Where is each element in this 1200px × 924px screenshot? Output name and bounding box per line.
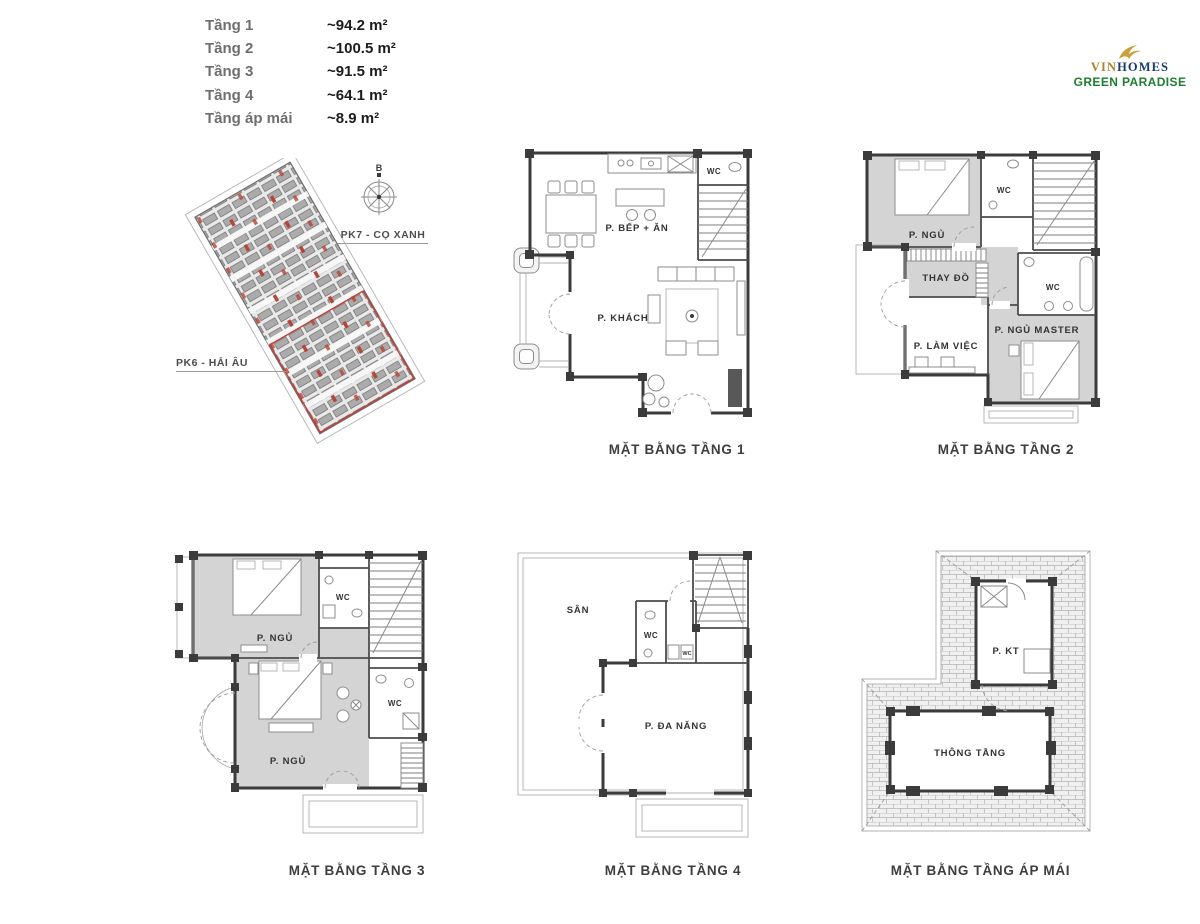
floor-plan-drawing-ap-mai: P. KT THÔNG TẦNG — [848, 543, 1113, 848]
zone-label-pk7: PK7 - CỌ XANH — [338, 229, 428, 244]
brand-suffix: HOMES — [1117, 60, 1169, 74]
floorplan-sheet: Tầng 1 ~94.2 m² Tầng 2 ~100.5 m² Tầng 3 … — [0, 0, 1200, 924]
bed — [895, 159, 969, 215]
room-label-void: THÔNG TẦNG — [934, 747, 1006, 759]
dining-set — [546, 181, 596, 247]
floor-name: Tầng 3 — [205, 63, 327, 80]
stairs — [693, 555, 748, 628]
caption-tang-4: MẶT BẰNG TẦNG 4 — [573, 863, 773, 878]
room-label-wc: WC — [707, 167, 721, 176]
legend-row: Tầng 3 ~91.5 m² — [205, 60, 396, 83]
caption-tang-3: MẶT BẰNG TẦNG 3 — [257, 863, 457, 878]
floor-plan-ap-mai: P. KT THÔNG TẦNG — [848, 543, 1113, 848]
porch — [514, 248, 568, 369]
room-label-dressing: THAY ĐỒ — [922, 272, 969, 284]
side-balcony — [175, 555, 193, 658]
room-label-wc: WC — [644, 631, 658, 640]
brand-name: VINHOMES — [1072, 61, 1188, 74]
toilet — [729, 163, 741, 172]
compass-icon: B — [357, 162, 401, 220]
room-label-wc-side: WC — [388, 699, 402, 708]
project-name: GREEN PARADISE — [1072, 75, 1188, 89]
floor-name: Tầng 2 — [205, 40, 327, 57]
floor-plan-tang-3: P. NGỦ WC P. NGỦ WC — [175, 543, 440, 848]
door-opening — [671, 408, 711, 417]
brand-prefix: VIN — [1091, 60, 1117, 74]
compass-north-label: B — [376, 163, 383, 173]
floor-name: Tầng áp mái — [205, 110, 327, 127]
door-opening — [952, 243, 976, 251]
caption-tang-2: MẶT BẰNG TẦNG 2 — [906, 442, 1106, 457]
room-label-bedroom-main: P. NGỦ — [270, 755, 306, 767]
legend-row: Tầng áp mái ~8.9 m² — [205, 107, 396, 130]
floor-name: Tầng 4 — [205, 87, 327, 104]
floor-plan-drawing-tang-3: P. NGỦ WC P. NGỦ WC — [175, 543, 440, 848]
balcony — [984, 406, 1078, 423]
side-terrace — [856, 245, 905, 374]
room-label-living: P. KHÁCH — [597, 313, 648, 324]
bird-icon — [1117, 44, 1143, 60]
stairs — [1033, 161, 1096, 245]
technical-room — [976, 579, 1052, 686]
floor-name: Tầng 1 — [205, 17, 327, 34]
floor-area: ~8.9 m² — [327, 110, 379, 127]
office-desks — [909, 357, 975, 373]
caption-tang-1: MẶT BẰNG TẦNG 1 — [577, 442, 777, 457]
caption-ap-mai: MẶT BẰNG TẦNG ÁP MÁI — [858, 863, 1103, 878]
floor-area: ~91.5 m² — [327, 63, 387, 80]
legend-row: Tầng 1 ~94.2 m² — [205, 14, 396, 37]
room-label-terrace: SÂN — [567, 604, 589, 616]
room-label-kitchen-dining: P. BẾP + ĂN — [605, 223, 668, 234]
curved-balcony — [200, 683, 239, 773]
room-label-bedroom: P. NGỦ — [909, 229, 945, 241]
room-label-wc-master: WC — [1046, 283, 1060, 292]
floor-plan-tang-1: P. BẾP + ĂN P. KHÁCH WC — [510, 145, 760, 427]
brand-logo: VINHOMES GREEN PARADISE — [1072, 44, 1188, 89]
room-label-wc-small: WC — [682, 651, 691, 657]
floor-plan-drawing-tang-4: SÂN WC WC P. ĐA NĂNG — [508, 543, 763, 848]
stairs — [698, 189, 748, 257]
floor-plan-tang-2: P. NGỦ WC THAY ĐỒ WC P. LÀM VIỆC P. NGỦ … — [853, 145, 1108, 430]
stairs — [369, 561, 423, 653]
room-label-master-bedroom: P. NGỦ MASTER — [995, 324, 1080, 336]
room-label-technical: P. KT — [992, 646, 1019, 657]
legend-row: Tầng 2 ~100.5 m² — [205, 37, 396, 60]
balcony — [636, 799, 748, 837]
floor-area: ~64.1 m² — [327, 87, 387, 104]
columns — [599, 551, 752, 797]
ladder-hatch — [401, 743, 423, 788]
area-legend: Tầng 1 ~94.2 m² Tầng 2 ~100.5 m² Tầng 3 … — [205, 14, 396, 130]
site-plan — [165, 158, 475, 453]
floor-plan-tang-4: SÂN WC WC P. ĐA NĂNG — [508, 543, 763, 848]
room-label-office: P. LÀM VIỆC — [914, 340, 979, 352]
floor-area: ~94.2 m² — [327, 17, 387, 34]
room-label-multipurpose: P. ĐA NĂNG — [645, 721, 707, 732]
room-label-wc-top: WC — [336, 593, 350, 602]
french-door-opening — [599, 693, 607, 719]
legend-row: Tầng 4 ~64.1 m² — [205, 84, 396, 107]
floor-area: ~100.5 m² — [327, 40, 396, 57]
zone-label-pk6: PK6 - HẢI ÂU — [176, 357, 286, 372]
site-plan-drawing — [165, 158, 475, 453]
kitchen-island — [616, 189, 664, 221]
balcony — [303, 795, 423, 833]
kitchen-counter — [608, 154, 696, 173]
room-label-wc-top: WC — [997, 186, 1011, 195]
floor-plan-drawing-tang-2: P. NGỦ WC THAY ĐỒ WC P. LÀM VIỆC P. NGỦ … — [853, 145, 1108, 430]
room-label-bedroom-top: P. NGỦ — [257, 632, 293, 644]
floor-plan-drawing-tang-1: P. BẾP + ĂN P. KHÁCH WC — [510, 145, 760, 427]
